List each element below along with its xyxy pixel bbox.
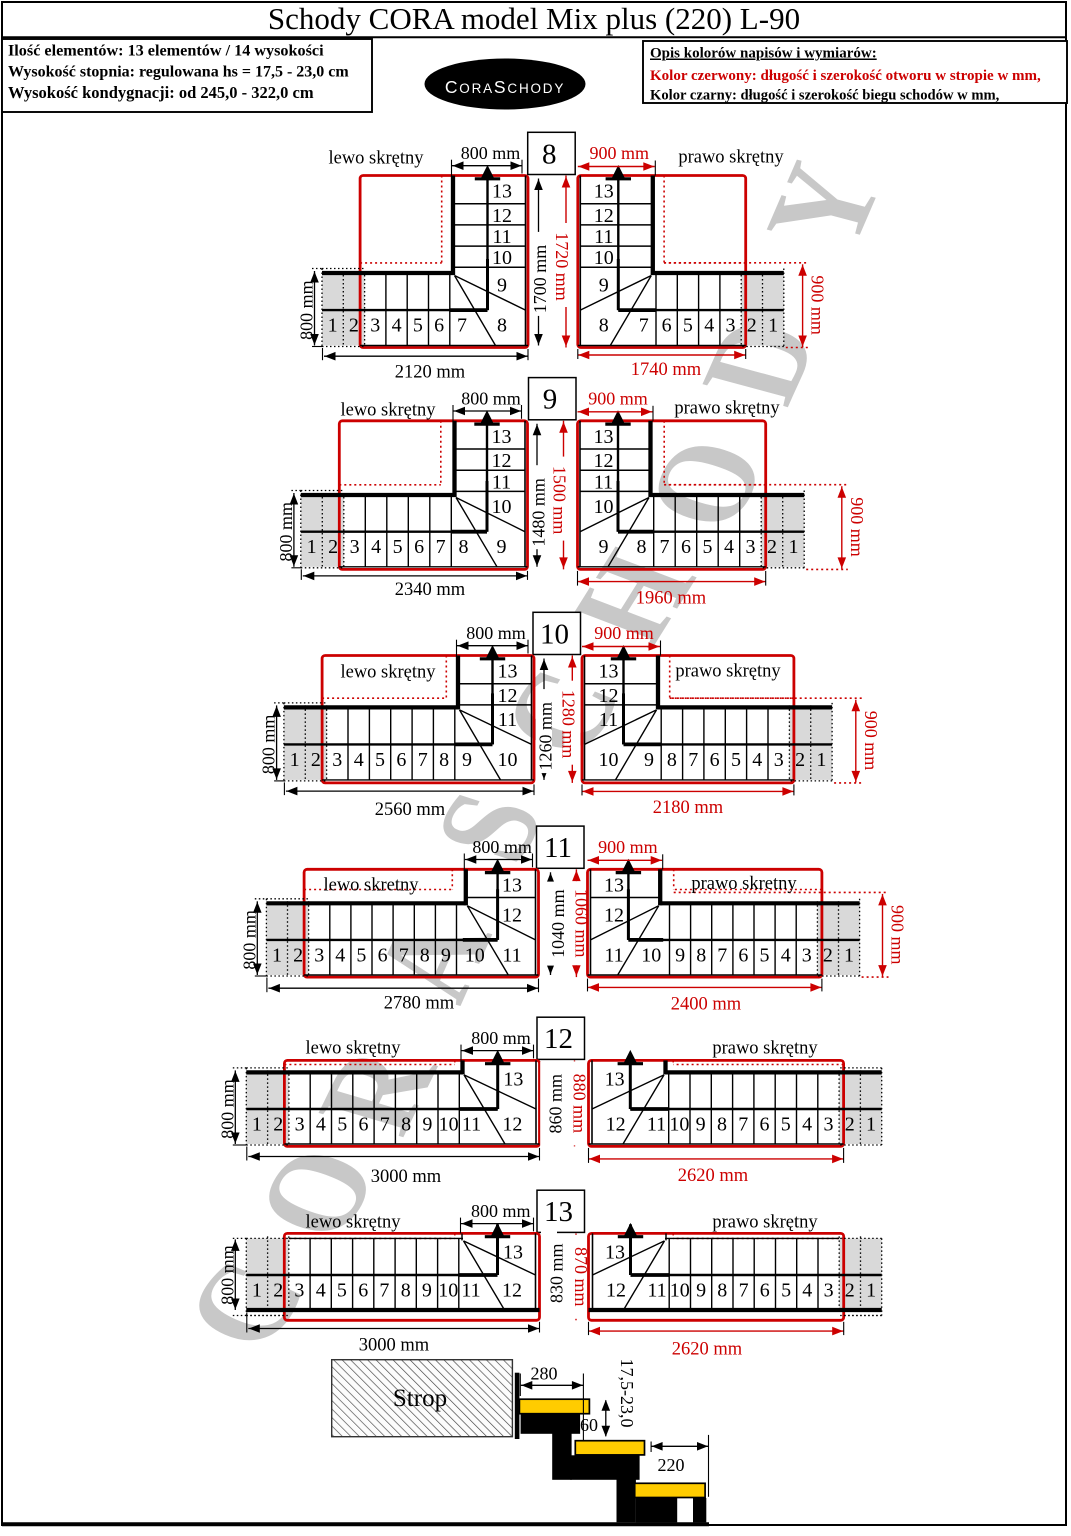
svg-text:2: 2 bbox=[845, 1114, 855, 1136]
svg-text:9: 9 bbox=[696, 1114, 706, 1136]
svg-text:220: 220 bbox=[658, 1455, 685, 1475]
svg-text:4: 4 bbox=[802, 1280, 812, 1302]
svg-text:1: 1 bbox=[789, 536, 799, 558]
svg-text:2: 2 bbox=[273, 1114, 283, 1136]
svg-text:8: 8 bbox=[667, 749, 677, 771]
svg-text:4: 4 bbox=[354, 749, 364, 771]
svg-text:8: 8 bbox=[439, 749, 449, 771]
svg-text:11: 11 bbox=[498, 709, 517, 731]
svg-text:900 mm: 900 mm bbox=[598, 837, 658, 857]
svg-text:13: 13 bbox=[594, 426, 614, 448]
svg-text:9: 9 bbox=[644, 749, 654, 771]
svg-text:Wysokość stopnia: regulowana: Wysokość stopnia: regulowana hs = 17,5 -… bbox=[8, 64, 349, 81]
svg-text:280: 280 bbox=[531, 1364, 558, 1384]
svg-text:8: 8 bbox=[637, 536, 647, 558]
svg-text:lewo skrętny: lewo skrętny bbox=[305, 1213, 401, 1233]
svg-text:2620 mm: 2620 mm bbox=[672, 1340, 743, 1360]
svg-text:800 mm: 800 mm bbox=[239, 910, 259, 970]
svg-text:13: 13 bbox=[605, 1068, 625, 1090]
svg-text:7: 7 bbox=[688, 749, 698, 771]
svg-text:11: 11 bbox=[492, 471, 511, 493]
svg-text:prawo skrętny: prawo skrętny bbox=[678, 148, 784, 168]
svg-text:12: 12 bbox=[502, 1280, 522, 1302]
svg-text:4: 4 bbox=[802, 1114, 812, 1136]
svg-text:17,5-23,0: 17,5-23,0 bbox=[617, 1359, 637, 1428]
svg-text:prawo skrętny: prawo skrętny bbox=[712, 1213, 818, 1233]
svg-text:5: 5 bbox=[760, 944, 770, 966]
svg-text:11: 11 bbox=[544, 832, 572, 864]
svg-text:900 mm: 900 mm bbox=[588, 388, 648, 408]
svg-text:9: 9 bbox=[462, 749, 472, 771]
svg-text:900 mm: 900 mm bbox=[888, 905, 908, 965]
svg-text:12: 12 bbox=[502, 1114, 522, 1136]
svg-text:13: 13 bbox=[604, 874, 624, 896]
svg-text:13: 13 bbox=[498, 661, 518, 683]
svg-text:8: 8 bbox=[459, 536, 469, 558]
svg-text:12: 12 bbox=[594, 450, 614, 472]
svg-text:10: 10 bbox=[438, 1280, 458, 1302]
svg-text:5: 5 bbox=[393, 536, 403, 558]
svg-text:830 mm: 830 mm bbox=[547, 1243, 567, 1303]
svg-text:9: 9 bbox=[497, 536, 507, 558]
svg-text:prawo skrętny: prawo skrętny bbox=[712, 1039, 818, 1059]
svg-text:7: 7 bbox=[399, 944, 409, 966]
svg-text:800 mm: 800 mm bbox=[461, 388, 521, 408]
svg-text:6: 6 bbox=[738, 944, 748, 966]
svg-text:12: 12 bbox=[604, 904, 624, 926]
svg-text:2: 2 bbox=[328, 536, 338, 558]
svg-text:8: 8 bbox=[401, 1280, 411, 1302]
svg-text:6: 6 bbox=[434, 315, 444, 337]
svg-text:6: 6 bbox=[414, 536, 424, 558]
svg-text:1: 1 bbox=[866, 1114, 876, 1136]
svg-text:7: 7 bbox=[739, 1280, 749, 1302]
svg-text:6: 6 bbox=[359, 1114, 369, 1136]
svg-text:800 mm: 800 mm bbox=[259, 715, 279, 775]
svg-text:10: 10 bbox=[492, 247, 512, 269]
svg-text:lewo skretny: lewo skretny bbox=[323, 876, 419, 896]
svg-text:7: 7 bbox=[379, 1280, 389, 1302]
svg-text:5: 5 bbox=[731, 749, 741, 771]
svg-text:10: 10 bbox=[498, 749, 518, 771]
svg-text:2780 mm: 2780 mm bbox=[384, 994, 455, 1014]
svg-text:8: 8 bbox=[717, 1280, 727, 1302]
svg-text:7: 7 bbox=[436, 536, 446, 558]
svg-text:10: 10 bbox=[641, 944, 661, 966]
svg-text:13: 13 bbox=[503, 1241, 523, 1263]
svg-text:10: 10 bbox=[540, 618, 569, 650]
svg-text:800 mm: 800 mm bbox=[472, 837, 532, 857]
svg-text:7: 7 bbox=[457, 315, 467, 337]
svg-text:6: 6 bbox=[358, 1280, 368, 1302]
svg-text:3: 3 bbox=[774, 749, 784, 771]
svg-text:12: 12 bbox=[594, 205, 614, 227]
svg-text:13: 13 bbox=[492, 181, 512, 203]
svg-text:5: 5 bbox=[337, 1114, 347, 1136]
svg-text:3: 3 bbox=[350, 536, 360, 558]
svg-text:9: 9 bbox=[599, 536, 609, 558]
svg-text:5: 5 bbox=[337, 1280, 347, 1302]
svg-text:5: 5 bbox=[781, 1280, 791, 1302]
svg-text:2: 2 bbox=[273, 1280, 283, 1302]
svg-text:3: 3 bbox=[824, 1280, 834, 1302]
svg-text:800 mm: 800 mm bbox=[217, 1245, 237, 1305]
svg-text:9: 9 bbox=[543, 384, 558, 416]
svg-text:Kolor czarny: długość i szero: Kolor czarny: długość i szerokość biegu … bbox=[650, 88, 1000, 104]
svg-text:800 mm: 800 mm bbox=[297, 280, 317, 340]
svg-text:1: 1 bbox=[290, 749, 300, 771]
svg-text:11: 11 bbox=[502, 944, 521, 966]
svg-text:11: 11 bbox=[594, 471, 613, 493]
svg-text:2180 mm: 2180 mm bbox=[653, 798, 724, 818]
svg-text:1500 mm: 1500 mm bbox=[550, 466, 570, 535]
svg-text:Strop: Strop bbox=[393, 1385, 447, 1412]
svg-text:6: 6 bbox=[378, 944, 388, 966]
svg-text:12: 12 bbox=[492, 450, 512, 472]
svg-text:2340 mm: 2340 mm bbox=[395, 580, 466, 600]
svg-text:2560 mm: 2560 mm bbox=[375, 800, 446, 820]
svg-text:7: 7 bbox=[380, 1114, 390, 1136]
svg-text:2: 2 bbox=[349, 315, 359, 337]
svg-text:800 mm: 800 mm bbox=[217, 1079, 237, 1139]
svg-text:11: 11 bbox=[462, 1114, 481, 1136]
svg-text:1: 1 bbox=[252, 1114, 262, 1136]
svg-text:800 mm: 800 mm bbox=[471, 1028, 531, 1048]
svg-text:6: 6 bbox=[710, 749, 720, 771]
svg-text:4: 4 bbox=[724, 536, 734, 558]
svg-text:9: 9 bbox=[599, 275, 609, 297]
svg-text:10: 10 bbox=[669, 1114, 689, 1136]
svg-text:9: 9 bbox=[497, 275, 507, 297]
svg-text:800 mm: 800 mm bbox=[461, 143, 521, 163]
svg-text:4: 4 bbox=[392, 315, 402, 337]
svg-text:Schody CORA model Mix plus (22: Schody CORA model Mix plus (220) L-90 bbox=[268, 1, 800, 36]
svg-text:60: 60 bbox=[580, 1415, 598, 1435]
svg-text:10: 10 bbox=[670, 1280, 690, 1302]
svg-text:800 mm: 800 mm bbox=[466, 623, 526, 643]
svg-text:6: 6 bbox=[396, 749, 406, 771]
svg-text:9: 9 bbox=[441, 944, 451, 966]
svg-text:3: 3 bbox=[314, 944, 324, 966]
svg-text:2: 2 bbox=[795, 749, 805, 771]
svg-text:4: 4 bbox=[316, 1114, 326, 1136]
svg-text:3: 3 bbox=[332, 749, 342, 771]
svg-text:9: 9 bbox=[422, 1114, 432, 1136]
svg-text:900 mm: 900 mm bbox=[594, 623, 654, 643]
svg-text:1700 mm: 1700 mm bbox=[530, 245, 550, 314]
svg-text:1040 mm: 1040 mm bbox=[548, 889, 568, 958]
svg-text:5: 5 bbox=[781, 1114, 791, 1136]
svg-text:lewo skrętny: lewo skrętny bbox=[340, 401, 436, 421]
svg-text:13: 13 bbox=[492, 426, 512, 448]
svg-text:13: 13 bbox=[503, 1068, 523, 1090]
svg-text:10: 10 bbox=[439, 1114, 459, 1136]
svg-text:1260 mm: 1260 mm bbox=[536, 702, 556, 771]
svg-text:880 mm: 880 mm bbox=[570, 1074, 590, 1134]
svg-text:11: 11 bbox=[647, 1114, 666, 1136]
svg-text:3: 3 bbox=[294, 1280, 304, 1302]
svg-text:prawo skretny: prawo skretny bbox=[691, 874, 797, 894]
svg-text:11: 11 bbox=[647, 1280, 666, 1302]
svg-text:3: 3 bbox=[370, 315, 380, 337]
svg-text:Wysokość kondygnacji: od 245,0: Wysokość kondygnacji: od 245,0 - 322,0 c… bbox=[8, 83, 314, 102]
svg-text:2: 2 bbox=[311, 749, 321, 771]
svg-text:1: 1 bbox=[272, 944, 282, 966]
svg-text:2: 2 bbox=[845, 1280, 855, 1302]
svg-text:4: 4 bbox=[752, 749, 762, 771]
svg-text:13: 13 bbox=[594, 181, 614, 203]
svg-text:1740 mm: 1740 mm bbox=[631, 360, 702, 380]
svg-text:12: 12 bbox=[498, 685, 518, 707]
svg-text:5: 5 bbox=[356, 944, 366, 966]
svg-text:4: 4 bbox=[335, 944, 345, 966]
svg-text:1: 1 bbox=[866, 1280, 876, 1302]
svg-text:12: 12 bbox=[599, 685, 619, 707]
svg-text:13: 13 bbox=[599, 661, 619, 683]
svg-text:12: 12 bbox=[502, 904, 522, 926]
svg-text:10: 10 bbox=[465, 944, 485, 966]
svg-text:5: 5 bbox=[375, 749, 385, 771]
svg-text:900 mm: 900 mm bbox=[861, 711, 881, 771]
svg-text:8: 8 bbox=[401, 1114, 411, 1136]
svg-text:3: 3 bbox=[726, 315, 736, 337]
svg-text:lewo skrętny: lewo skrętny bbox=[328, 149, 424, 169]
svg-text:13: 13 bbox=[544, 1196, 573, 1228]
svg-text:8: 8 bbox=[497, 315, 507, 337]
svg-text:8: 8 bbox=[542, 138, 557, 170]
svg-text:900 mm: 900 mm bbox=[847, 497, 867, 557]
svg-text:5: 5 bbox=[703, 536, 713, 558]
svg-text:4: 4 bbox=[704, 315, 714, 337]
svg-text:3: 3 bbox=[802, 944, 812, 966]
svg-text:1480 mm: 1480 mm bbox=[529, 478, 549, 547]
svg-text:2: 2 bbox=[823, 944, 833, 966]
svg-text:1: 1 bbox=[816, 749, 826, 771]
svg-text:4: 4 bbox=[781, 944, 791, 966]
svg-text:2: 2 bbox=[747, 315, 757, 337]
svg-text:1: 1 bbox=[328, 315, 338, 337]
svg-text:1: 1 bbox=[768, 315, 778, 337]
svg-text:2: 2 bbox=[767, 536, 777, 558]
svg-text:3000 mm: 3000 mm bbox=[359, 1336, 430, 1356]
svg-text:7: 7 bbox=[717, 944, 727, 966]
svg-text:900 mm: 900 mm bbox=[808, 275, 828, 335]
svg-text:1280 mm: 1280 mm bbox=[558, 690, 578, 759]
svg-text:12: 12 bbox=[492, 205, 512, 227]
svg-text:Ilość elementów: 13 elementów: Ilość elementów: 13 elementów / 14 wysok… bbox=[8, 42, 324, 60]
svg-text:11: 11 bbox=[604, 944, 623, 966]
svg-text:prawo skrętny: prawo skrętny bbox=[674, 399, 780, 419]
svg-text:3: 3 bbox=[824, 1114, 834, 1136]
svg-text:7: 7 bbox=[660, 536, 670, 558]
svg-text:13: 13 bbox=[502, 874, 522, 896]
svg-text:9: 9 bbox=[675, 944, 685, 966]
svg-text:6: 6 bbox=[662, 315, 672, 337]
svg-text:12: 12 bbox=[606, 1114, 626, 1136]
svg-text:8: 8 bbox=[599, 315, 609, 337]
svg-text:6: 6 bbox=[760, 1280, 770, 1302]
svg-text:2120 mm: 2120 mm bbox=[395, 363, 466, 383]
svg-text:9: 9 bbox=[422, 1280, 432, 1302]
svg-text:6: 6 bbox=[760, 1114, 770, 1136]
svg-text:1720 mm: 1720 mm bbox=[552, 232, 572, 301]
svg-text:1: 1 bbox=[307, 536, 317, 558]
svg-text:900 mm: 900 mm bbox=[590, 143, 650, 163]
svg-text:1960 mm: 1960 mm bbox=[636, 589, 707, 609]
svg-text:800 mm: 800 mm bbox=[276, 502, 296, 562]
svg-text:7: 7 bbox=[738, 1114, 748, 1136]
svg-text:8: 8 bbox=[717, 1114, 727, 1136]
svg-text:6: 6 bbox=[681, 536, 691, 558]
svg-text:4: 4 bbox=[316, 1280, 326, 1302]
svg-text:8: 8 bbox=[696, 944, 706, 966]
svg-text:2400 mm: 2400 mm bbox=[671, 995, 742, 1015]
svg-text:1: 1 bbox=[844, 944, 854, 966]
svg-text:Kolor czerwony: długość i sze: Kolor czerwony: długość i szerokość otwo… bbox=[650, 68, 1041, 84]
svg-text:4: 4 bbox=[371, 536, 381, 558]
svg-text:12: 12 bbox=[606, 1280, 626, 1302]
svg-text:11: 11 bbox=[594, 226, 613, 248]
svg-text:13: 13 bbox=[605, 1241, 625, 1263]
svg-text:lewo skrętny: lewo skrętny bbox=[340, 663, 436, 683]
svg-text:12: 12 bbox=[544, 1023, 573, 1055]
svg-text:2620 mm: 2620 mm bbox=[678, 1166, 749, 1186]
svg-text:800 mm: 800 mm bbox=[471, 1201, 531, 1221]
svg-text:5: 5 bbox=[683, 315, 693, 337]
svg-text:8: 8 bbox=[420, 944, 430, 966]
svg-text:5: 5 bbox=[413, 315, 423, 337]
svg-text:7: 7 bbox=[639, 315, 649, 337]
svg-text:3: 3 bbox=[295, 1114, 305, 1136]
svg-text:prawo skrętny: prawo skrętny bbox=[675, 662, 781, 682]
svg-text:10: 10 bbox=[599, 749, 619, 771]
svg-text:11: 11 bbox=[492, 226, 511, 248]
svg-text:Opis kolorów napisów i wymiaró: Opis kolorów napisów i wymiarów: bbox=[650, 46, 877, 62]
svg-text:3: 3 bbox=[746, 536, 756, 558]
svg-text:1: 1 bbox=[252, 1280, 262, 1302]
svg-text:10: 10 bbox=[594, 247, 614, 269]
svg-text:860 mm: 860 mm bbox=[546, 1074, 566, 1134]
svg-text:10: 10 bbox=[594, 496, 614, 518]
svg-text:lewo skrętny: lewo skrętny bbox=[305, 1039, 401, 1059]
svg-text:11: 11 bbox=[461, 1280, 480, 1302]
svg-text:2: 2 bbox=[293, 944, 303, 966]
svg-text:11: 11 bbox=[599, 709, 618, 731]
svg-text:9: 9 bbox=[696, 1280, 706, 1302]
svg-text:7: 7 bbox=[418, 749, 428, 771]
svg-text:3000 mm: 3000 mm bbox=[371, 1167, 442, 1187]
svg-text:10: 10 bbox=[492, 496, 512, 518]
